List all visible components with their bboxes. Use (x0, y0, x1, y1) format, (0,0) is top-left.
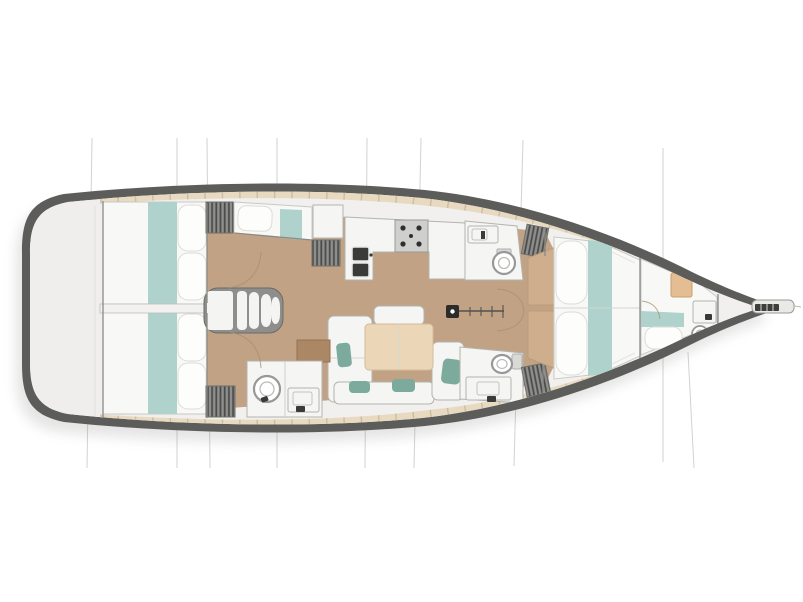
faucet (705, 314, 712, 320)
stair-step (249, 292, 259, 329)
pillow (556, 312, 587, 375)
bed-runner (148, 312, 177, 414)
interior-layout (30, 193, 718, 426)
pillow (556, 241, 587, 304)
faucet (296, 406, 305, 412)
head-lower-aft (247, 361, 322, 417)
mast-center (450, 309, 454, 313)
settee-top (374, 306, 424, 325)
louvered-locker (312, 240, 340, 266)
stair-step (271, 297, 280, 324)
pillow (178, 205, 206, 251)
bed-runner (280, 209, 302, 240)
pillow (238, 205, 273, 231)
accent-cushion (392, 379, 415, 392)
section-line (688, 352, 694, 468)
faucet (487, 396, 496, 402)
forestay-fitting (794, 306, 801, 307)
bed-runner (148, 202, 177, 304)
burner (416, 241, 421, 246)
bed-runner (641, 311, 684, 327)
toilet-tank (512, 354, 522, 369)
bowsprit (752, 300, 801, 313)
faucet (481, 231, 485, 239)
stair-step (237, 291, 247, 330)
louvered-wardrobe (206, 386, 235, 417)
nav-desk (297, 340, 330, 362)
faucet (369, 253, 372, 256)
louvered-wardrobe (206, 202, 235, 233)
toilet (493, 252, 515, 274)
cabinet (313, 205, 343, 238)
accent-cushion (440, 358, 462, 385)
companionway-stairs (204, 288, 283, 333)
accent-cushion (336, 342, 352, 367)
louvered-locker (521, 363, 550, 397)
galley-sink (352, 247, 369, 261)
pillow (178, 314, 206, 361)
yacht-floor-plan (0, 0, 803, 602)
galley-sink (352, 263, 369, 277)
pillow (178, 363, 206, 409)
burner (400, 225, 405, 230)
accent-cushion (349, 381, 370, 393)
swim-platform-locker (30, 200, 103, 422)
pillow (178, 253, 206, 300)
cabin-divider-wall (100, 304, 212, 313)
burner (400, 241, 405, 246)
burner (409, 234, 413, 238)
stair-step (261, 294, 271, 327)
floor-plan-svg (0, 0, 803, 602)
toilet (492, 355, 512, 373)
stair-landing (207, 291, 233, 330)
washbasin-unit (693, 301, 716, 323)
burner (416, 225, 421, 230)
